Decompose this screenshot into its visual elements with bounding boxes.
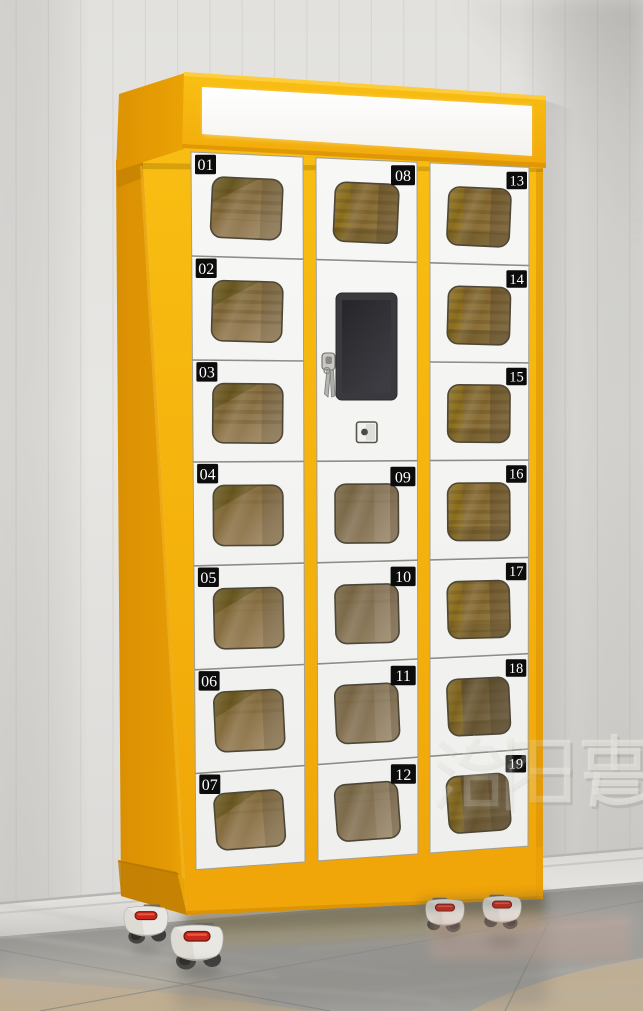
svg-text:09: 09 <box>395 469 411 486</box>
svg-text:16: 16 <box>509 467 524 483</box>
svg-text:02: 02 <box>198 261 214 278</box>
svg-text:10: 10 <box>395 569 411 586</box>
svg-text:17: 17 <box>509 564 524 580</box>
svg-text:01: 01 <box>198 157 214 174</box>
svg-text:04: 04 <box>200 466 216 483</box>
svg-text:14: 14 <box>509 272 524 288</box>
svg-text:07: 07 <box>202 777 218 794</box>
svg-text:13: 13 <box>510 173 525 189</box>
svg-text:11: 11 <box>395 668 410 685</box>
svg-text:03: 03 <box>199 365 215 382</box>
svg-text:08: 08 <box>395 168 411 185</box>
svg-text:05: 05 <box>200 570 216 587</box>
svg-text:15: 15 <box>509 369 524 385</box>
svg-text:06: 06 <box>201 674 217 691</box>
svg-text:12: 12 <box>395 767 411 784</box>
svg-text:18: 18 <box>509 661 524 677</box>
